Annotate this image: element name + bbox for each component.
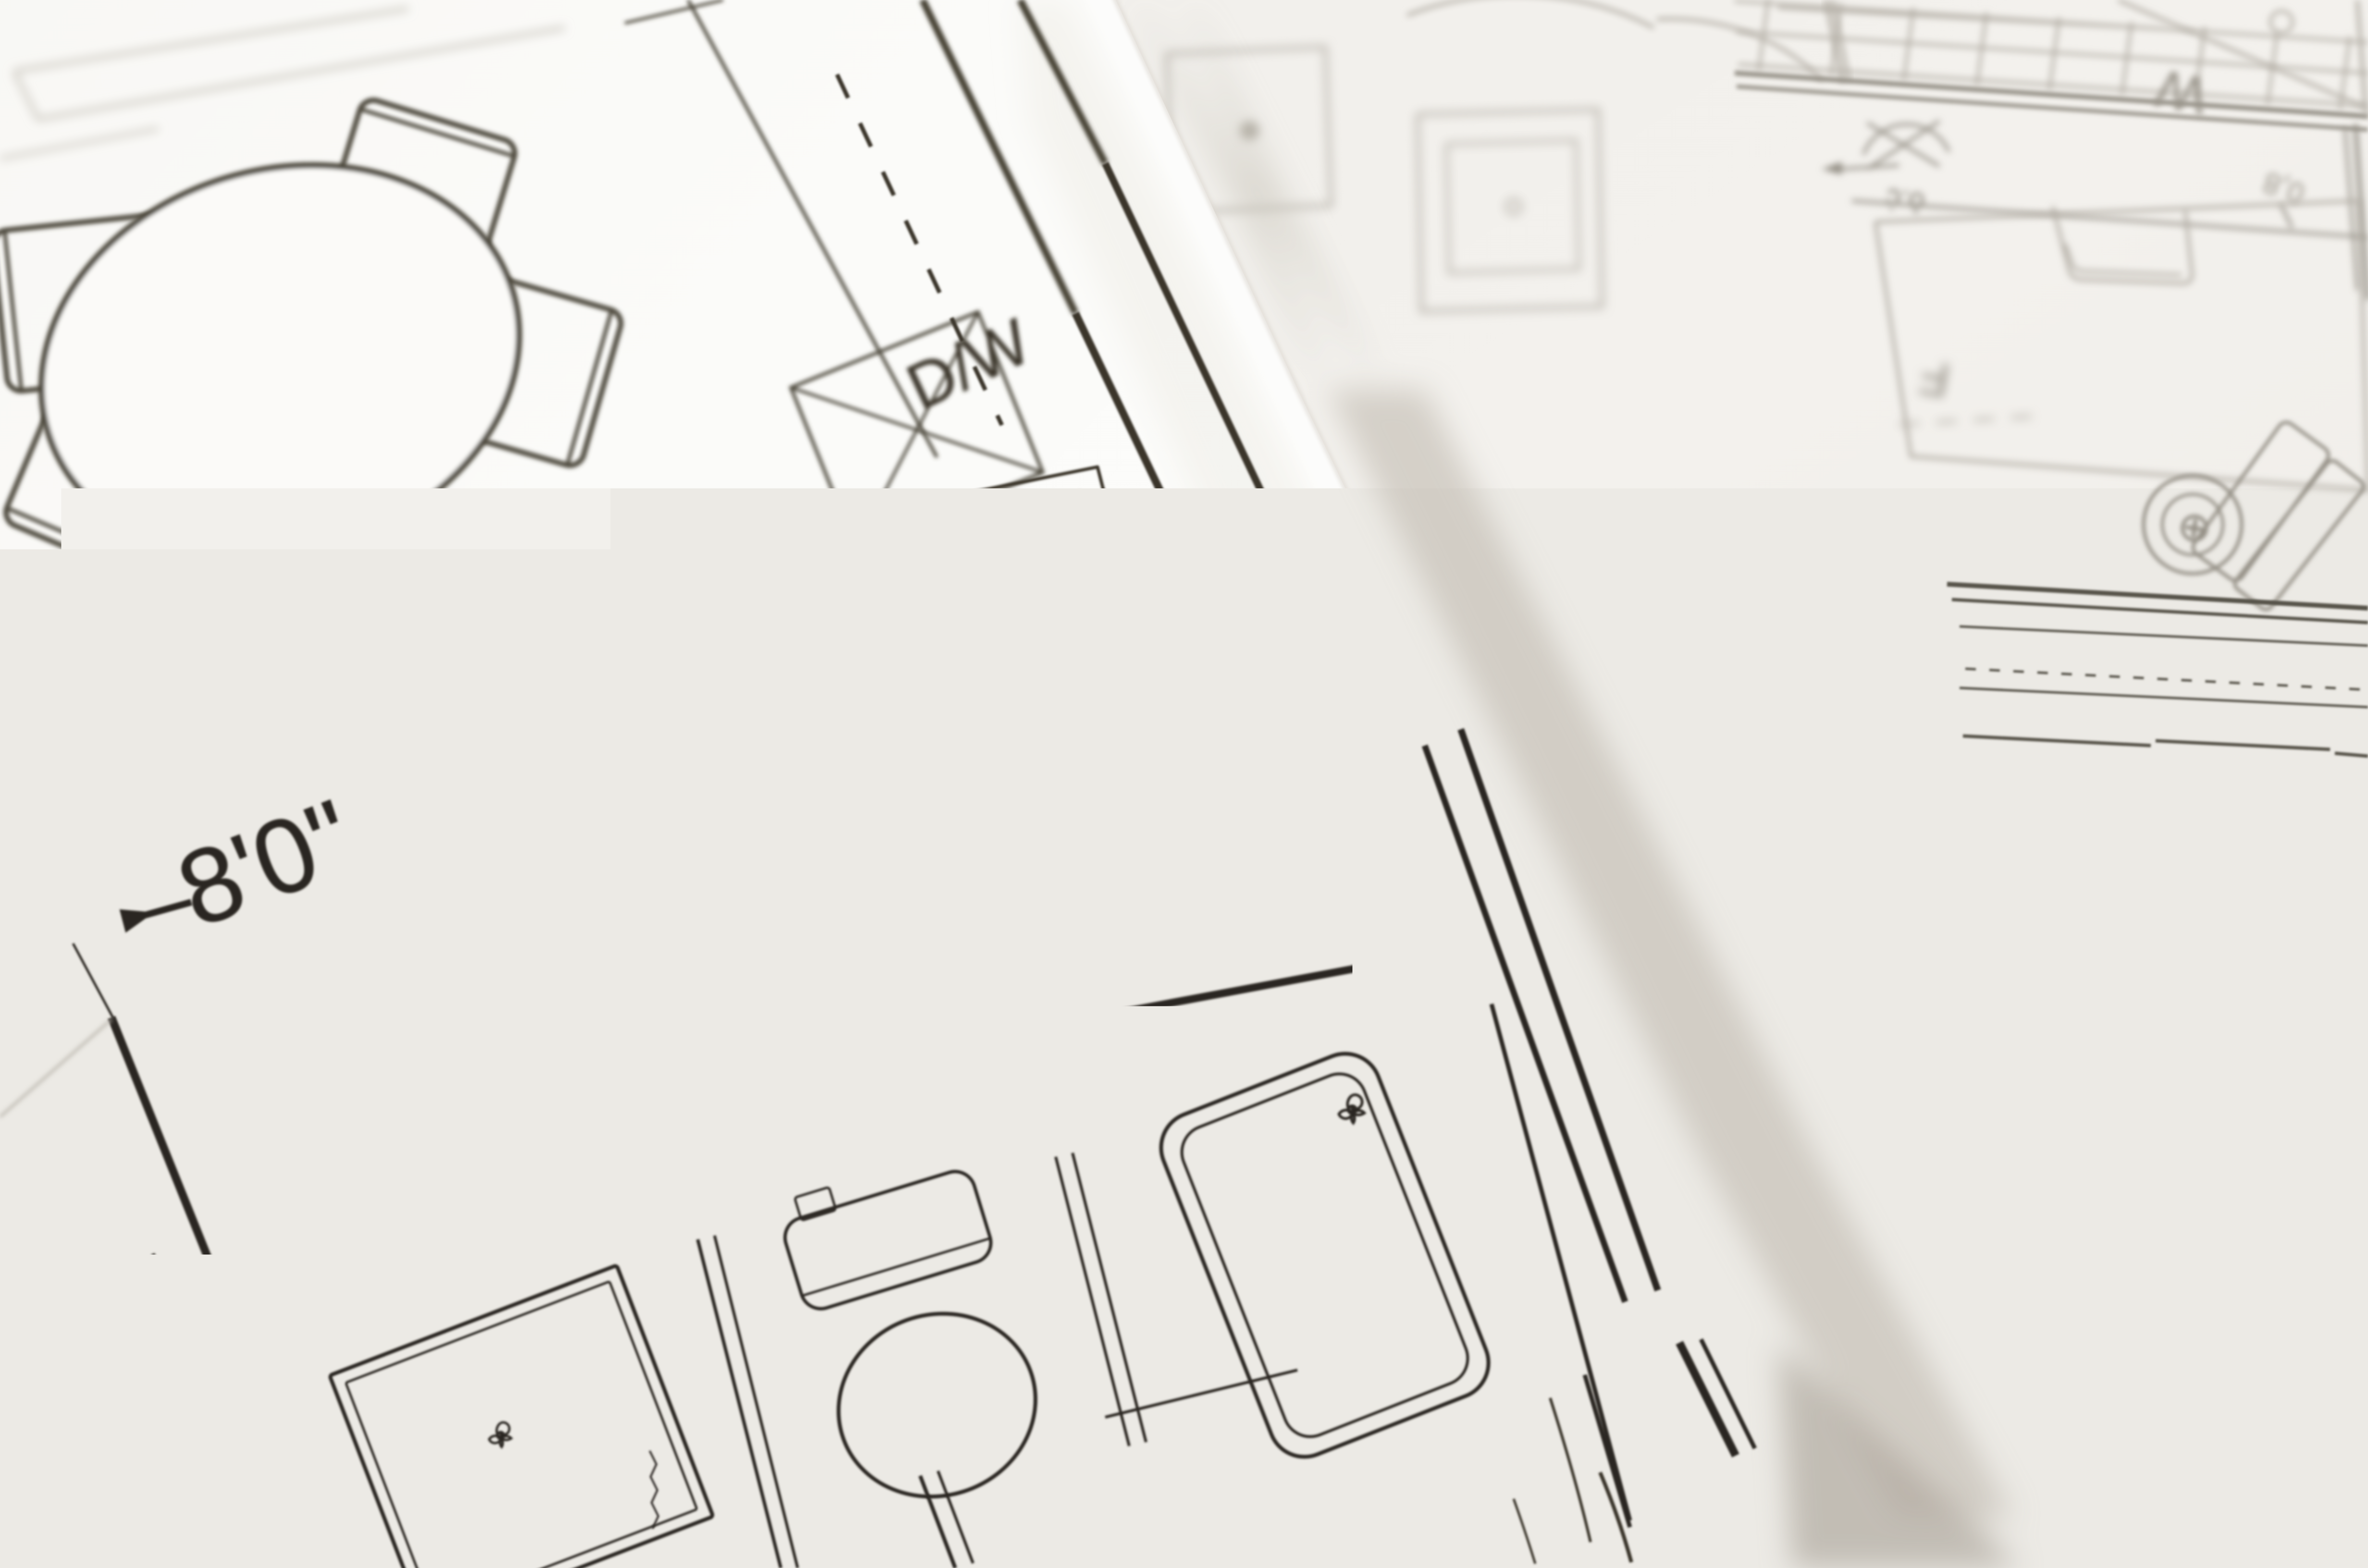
svg-text:EP: EP [1753, 748, 1828, 813]
svg-text:CP: CP [1839, 657, 1922, 726]
svg-text:ò.ċ: ò.ċ [1884, 183, 1927, 220]
svg-text:0.8: 0.8 [2034, 490, 2100, 545]
